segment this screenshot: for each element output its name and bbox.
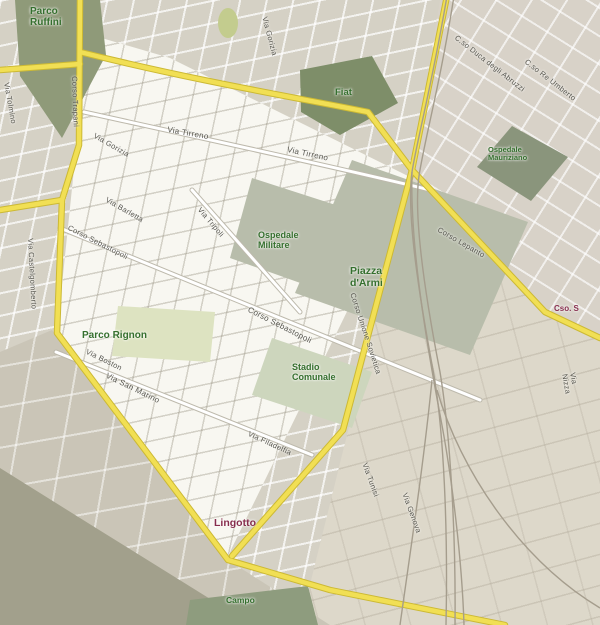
campo-area	[186, 586, 318, 625]
railway-track-5	[400, 380, 432, 625]
map-canvas[interactable]: Parco RuffiniFiatOspedale MilitarePiazza…	[0, 0, 600, 625]
road-west-branch-2-core	[0, 200, 62, 210]
map-overlay	[0, 0, 600, 625]
small-park-area	[218, 8, 238, 38]
ospedale-mauriziano-area	[477, 126, 568, 201]
park-areas	[15, 0, 568, 625]
fiat-area	[300, 56, 398, 135]
parco-rignon-area	[112, 306, 215, 362]
